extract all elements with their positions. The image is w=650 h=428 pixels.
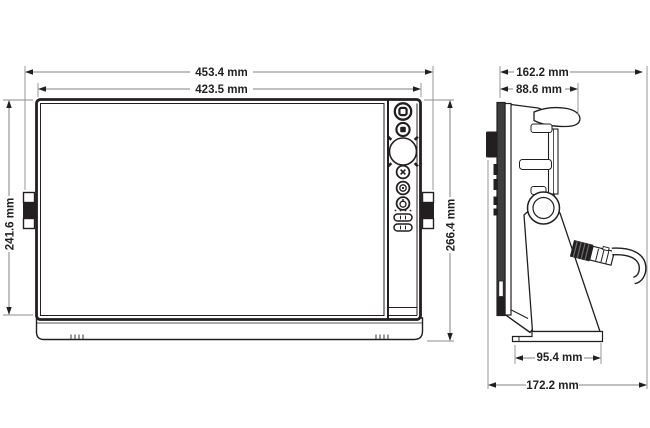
dim-label-side-overall-depth: 162.2 mm [516, 67, 568, 79]
dim-side-overall-depth: 162.2 mm [500, 67, 643, 79]
knob-profile [486, 132, 498, 158]
dim-front-bezel-height: 241.6 mm [5, 100, 17, 315]
dim-side-base-width: 95.4 mm [515, 352, 601, 364]
dim-label-front-overall-width: 453.4 mm [195, 67, 247, 79]
dim-front-bezel-width: 423.5 mm [38, 84, 421, 96]
right-latch [422, 193, 435, 229]
dim-label-side-total-depth: 172.2 mm [526, 380, 578, 392]
device-bezel [37, 100, 421, 320]
dim-label-front-bezel-height: 241.6 mm [5, 198, 17, 250]
bezel-profile [505, 104, 511, 316]
dim-side-body-depth: 88.6 mm [500, 84, 578, 96]
bracket-knob [528, 192, 560, 224]
bracket-base [513, 332, 603, 342]
dim-label-front-bezel-width: 423.5 mm [195, 84, 247, 96]
side-view [486, 103, 643, 342]
bracket-arm [524, 206, 600, 332]
front-panel-profile [486, 103, 505, 316]
dim-side-total-depth: 172.2 mm [488, 380, 647, 392]
left-latch [23, 193, 36, 229]
card-slot [499, 281, 503, 297]
dim-label-side-body-depth: 88.6 mm [516, 84, 562, 96]
dim-label-front-overall-height: 266.4 mm [446, 199, 458, 251]
dim-front-overall-width: 453.4 mm [25, 67, 433, 79]
technical-drawing: 453.4 mm 423.5 mm 241.6 mm 266.4 mm [0, 0, 650, 428]
dim-label-side-base-width: 95.4 mm [536, 352, 582, 364]
base-strip [37, 318, 423, 340]
dim-front-overall-height: 266.4 mm [446, 100, 458, 341]
dimension-drawing-canvas: 453.4 mm 423.5 mm 241.6 mm 266.4 mm [0, 0, 650, 428]
front-view [23, 100, 434, 340]
